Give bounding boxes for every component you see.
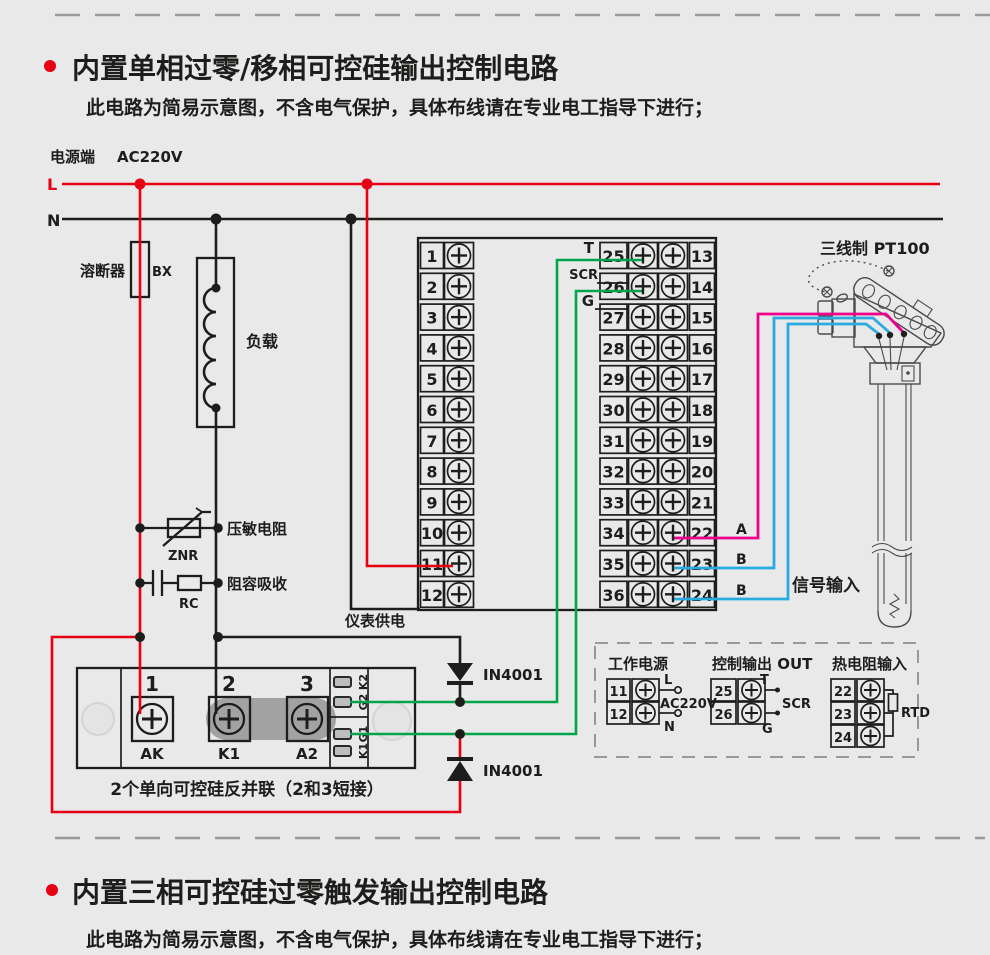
- wiring-diagram-page: 内置单相过零/移相可控硅输出控制电路 此电路为简易示意图，不含电气保护，具体布线…: [0, 0, 990, 955]
- pin-k2: [334, 677, 351, 687]
- terminal-number-middle: 25: [602, 247, 624, 266]
- legend-power-voltage: AC220V: [660, 697, 717, 712]
- legend-rtd-23: 23: [834, 708, 852, 723]
- section1-bullet: [44, 60, 56, 72]
- legend-output-scr: SCR: [782, 697, 811, 712]
- legend-rtd-title: 热电阻输入: [832, 655, 907, 673]
- circuit-diagram: 内置单相过零/移相可控硅输出控制电路 此电路为简易示意图，不含电气保护，具体布线…: [0, 0, 990, 955]
- fuse: 溶断器 BX: [80, 242, 172, 297]
- module-ghost-circle-left: [82, 703, 114, 735]
- module-num-3: 3: [300, 672, 314, 696]
- power-voltage-label: AC220V: [117, 148, 183, 166]
- module-num-1: 1: [145, 672, 159, 696]
- pin-g1: [334, 729, 351, 739]
- module-name-a2: A2: [296, 745, 318, 763]
- terminal-number-right: 16: [691, 339, 713, 358]
- module-name-k1: K1: [218, 745, 240, 763]
- terminal-number-left: 8: [426, 463, 437, 482]
- chain-dotted: [808, 261, 888, 292]
- legend-screw: [742, 681, 761, 700]
- snubber: 阻容吸收 RC: [153, 570, 287, 612]
- output-g-label: G: [582, 292, 594, 310]
- terminal-number-middle: 26: [602, 278, 624, 297]
- module-caption: 2个单向可控硅反并联（2和3短接）: [110, 779, 384, 800]
- terminal-number-middle: 28: [602, 339, 624, 358]
- legend-power-11: 11: [609, 685, 627, 700]
- gland-ring-2: [818, 319, 833, 334]
- terminal-block-rows: 1251322614327154281652917630187311983220…: [421, 243, 715, 608]
- probe-stem-upper: [878, 384, 911, 541]
- collar-dot: [906, 371, 910, 375]
- terminal-number-middle: 30: [602, 401, 624, 420]
- legend-screw: [861, 681, 880, 700]
- legend-power-12: 12: [609, 708, 627, 723]
- legend-output-26: 26: [714, 708, 732, 723]
- diode-bottom: IN4001: [447, 759, 543, 781]
- terminal-number-left: 7: [426, 432, 437, 451]
- module-name-ak: AK: [140, 745, 165, 763]
- diode-top-label: IN4001: [483, 666, 543, 684]
- terminal-number-right: 17: [691, 370, 713, 389]
- fuse-label: 溶断器: [80, 262, 126, 280]
- legend-output-title: 控制输出 OUT: [712, 655, 813, 673]
- varistor-code: ZNR: [168, 549, 198, 564]
- terminal-number-left: 11: [421, 555, 443, 574]
- sensor-title: 三线制 PT100: [820, 239, 930, 258]
- terminal-number-left: 2: [426, 278, 437, 297]
- legend-power-title: 工作电源: [608, 655, 668, 673]
- legend-output-t: T: [760, 673, 769, 688]
- terminal-number-left: 1: [426, 247, 437, 266]
- module-num-2: 2: [222, 672, 236, 696]
- legend-rtd-22: 22: [834, 685, 852, 700]
- legend-power-n: N: [664, 720, 675, 735]
- legend-screw: [861, 727, 880, 746]
- wire-label-a: A: [736, 522, 747, 538]
- section2-bullet: [46, 884, 58, 896]
- legend-screw: [861, 704, 880, 723]
- legend-rtd-label: RTD: [901, 706, 930, 721]
- cap-screw-right: [884, 266, 894, 276]
- terminal-number-middle: 27: [602, 309, 624, 328]
- terminal-number-right: 19: [691, 432, 713, 451]
- line-n-label: N: [47, 211, 60, 230]
- line-l-label: L: [47, 175, 57, 194]
- terminal-number-right: 13: [691, 247, 713, 266]
- legend-box: 工作电源 11 12 L AC220V N 控制输出 OUT 25 26 T S…: [595, 643, 930, 757]
- terminal-number-left: 6: [426, 401, 437, 420]
- pin-g2: [334, 697, 351, 707]
- output-t-label: T: [584, 239, 595, 257]
- terminal-number-middle: 34: [602, 524, 624, 543]
- legend-output-g: G: [762, 722, 773, 737]
- section2-subtitle: 此电路为简易示意图，不含电气保护，具体布线请在专业电工指导下进行；: [86, 928, 713, 951]
- load-label: 负载: [246, 332, 278, 351]
- section1-subtitle: 此电路为简易示意图，不含电气保护，具体布线请在专业电工指导下进行；: [86, 96, 713, 119]
- wire-label-b1: B: [736, 552, 747, 568]
- pin-k1: [334, 746, 351, 756]
- cap-bolt: [836, 293, 849, 304]
- terminal-number-right: 18: [691, 401, 713, 420]
- terminal-number-left: 5: [426, 370, 437, 389]
- sensor-cap: [850, 266, 953, 349]
- signal-input-label: 信号输入: [792, 575, 860, 596]
- legend-screw: [636, 681, 655, 700]
- junction-dots: [135, 179, 466, 740]
- terminal-number-middle: 33: [602, 493, 624, 512]
- snubber-code: RC: [179, 597, 199, 612]
- terminal-number-left: 4: [426, 339, 437, 358]
- legend-rtd-resistor: [889, 694, 898, 711]
- legend-output-25: 25: [714, 685, 732, 700]
- varistor-label: 压敏电阻: [227, 520, 287, 538]
- meter-supply-label: 仪表供电: [344, 612, 405, 630]
- fuse-code: BX: [152, 265, 172, 280]
- terminal-number-left: 9: [426, 493, 437, 512]
- pt100-sensor: 三线制 PT100: [808, 239, 952, 627]
- section2-title: 内置三相可控硅过零触发输出控制电路: [72, 876, 549, 909]
- live-branch-meter: [367, 184, 453, 566]
- rtd-element-zigzag: [890, 594, 899, 618]
- legend-screw: [636, 704, 655, 723]
- terminal-number-middle: 32: [602, 463, 624, 482]
- power-terminal-label: 电源端: [50, 148, 95, 166]
- varistor: 压敏电阻 ZNR: [163, 508, 287, 564]
- terminal-number-right: 20: [691, 463, 713, 482]
- terminal-number-left: 10: [421, 524, 443, 543]
- sensor-head-terminals: [876, 331, 907, 370]
- terminal-number-middle: 29: [602, 370, 624, 389]
- terminal-number-middle: 31: [602, 432, 624, 451]
- legend-rtd-24: 24: [834, 731, 852, 746]
- section1-title: 内置单相过零/移相可控硅输出控制电路: [72, 52, 559, 85]
- output-scr-label: SCR: [569, 268, 598, 283]
- sensor-funnel: [864, 347, 926, 363]
- legend-power-l: L: [664, 673, 672, 688]
- terminal-number-right: 21: [691, 493, 713, 512]
- terminal-number-right: 14: [691, 278, 713, 297]
- terminal-number-middle: 36: [602, 586, 624, 605]
- legend-screw: [742, 704, 761, 723]
- wire-label-b2: B: [736, 583, 747, 599]
- terminal-number-right: 24: [691, 586, 713, 605]
- probe-stem-lower: [878, 553, 911, 611]
- neutral-meter-branch: [351, 219, 420, 609]
- terminal-number-right: 23: [691, 555, 713, 574]
- terminal-number-left: 3: [426, 309, 437, 328]
- probe-tip: [878, 611, 911, 627]
- diode-top: IN4001: [447, 663, 543, 684]
- terminal-number-right: 15: [691, 309, 713, 328]
- pin-label-k2: K2: [357, 674, 370, 690]
- wires: [52, 184, 943, 812]
- terminal-number-left: 12: [421, 586, 443, 605]
- snubber-label: 阻容吸收: [227, 575, 287, 593]
- terminal-number-right: 22: [691, 524, 713, 543]
- pin-label-k1: K1: [357, 743, 370, 759]
- terminal-number-middle: 35: [602, 555, 624, 574]
- diode-bottom-label: IN4001: [483, 762, 543, 780]
- load: 负载: [197, 258, 278, 427]
